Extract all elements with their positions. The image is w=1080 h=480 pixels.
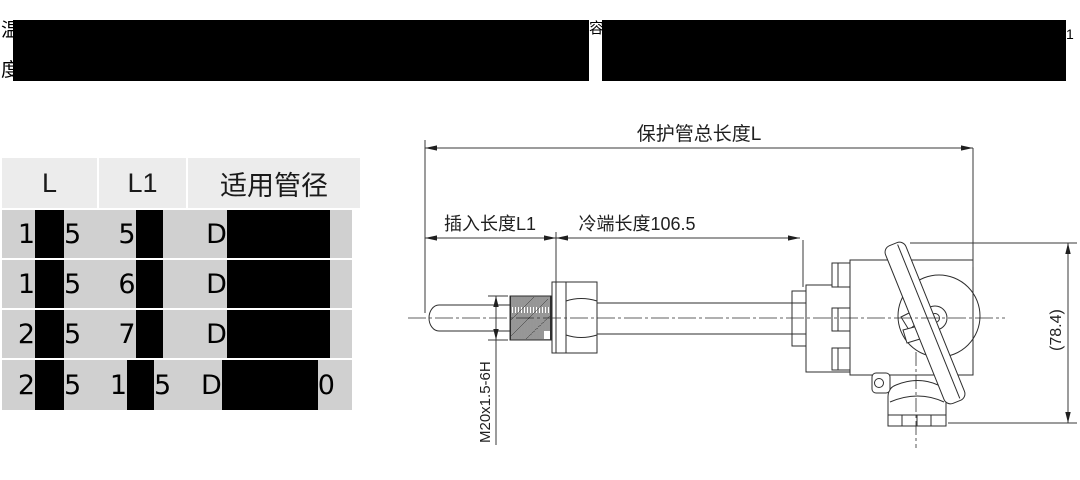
cell-L: 25 xyxy=(2,310,97,358)
flange-washer xyxy=(552,282,566,353)
redaction-bar xyxy=(127,360,154,410)
cell-L: 15 xyxy=(2,260,97,308)
cable-gland xyxy=(888,381,946,427)
sensor-drawing-svg: 保护管总长度L 插入长度L1 冷端长度106.5 M20x1.5-6H (78.… xyxy=(390,90,1080,480)
redaction-bar xyxy=(35,310,64,358)
redaction-bar xyxy=(13,20,1066,81)
dimension-arrows xyxy=(425,145,1071,423)
redaction-bar xyxy=(136,210,163,258)
cell-pipe: D0 xyxy=(184,360,352,410)
table-row: 25 7 D xyxy=(2,310,352,358)
cell-L: 15 xyxy=(2,210,97,258)
dim-insert-length-label: 插入长度L1 xyxy=(444,214,536,234)
table-header-row: L L1 适用管径 xyxy=(2,158,360,208)
table-row: 15 6 D xyxy=(2,260,352,308)
cell-pipe: D xyxy=(184,310,352,358)
redaction-bar xyxy=(227,260,330,308)
cell-L1: 7 xyxy=(97,310,184,358)
dimensions xyxy=(425,140,1077,445)
head-bosses xyxy=(832,263,850,370)
sensor-technical-drawing: 保护管总长度L 插入长度L1 冷端长度106.5 M20x1.5-6H (78.… xyxy=(390,90,1080,480)
datasheet-page: 温 度 容 1 L L1 适用管径 15 5 D xyxy=(0,0,1080,480)
cell-L1: 5 xyxy=(97,210,184,258)
cell-pipe: D xyxy=(184,260,352,308)
redaction-bar xyxy=(35,360,64,410)
hex-nut xyxy=(566,282,597,353)
dim-total-length-label: 保护管总长度L xyxy=(637,123,762,145)
table-body: 15 5 D 15 6 D xyxy=(2,210,352,410)
header-L1: L1 xyxy=(99,158,186,208)
cell-pipe: D xyxy=(184,210,352,258)
mounting-lug xyxy=(872,373,890,393)
table-row: 25 15 D0 xyxy=(2,360,352,410)
cell-L1: 15 xyxy=(97,360,184,410)
redaction-bar xyxy=(222,360,318,410)
intro-visible-column: 容 xyxy=(589,20,602,81)
redaction-bar xyxy=(227,210,330,258)
intro-line1-mid-char: 容 xyxy=(589,20,604,37)
cell-L: 25 xyxy=(2,360,97,410)
extension-tube xyxy=(597,303,792,334)
thread-spec-label: M20x1.5-6H xyxy=(477,361,494,443)
header-pipe-diameter: 适用管径 xyxy=(188,158,360,208)
cell-L1: 6 xyxy=(97,260,184,308)
head-fitting xyxy=(792,291,806,346)
redaction-bar xyxy=(227,310,330,358)
dimension-table: L L1 适用管径 15 5 D 15 6 xyxy=(2,158,360,410)
intro-line1-end-fragment: 1 xyxy=(1066,27,1074,41)
table-row: 15 5 D xyxy=(2,210,352,258)
redaction-bar xyxy=(35,210,64,258)
dim-cold-end-label: 冷端长度106.5 xyxy=(578,214,695,234)
head-height-label: (78.4) xyxy=(1048,309,1065,351)
redaction-bar xyxy=(136,310,163,358)
redaction-bar xyxy=(136,260,163,308)
redaction-bar xyxy=(35,260,64,308)
header-L: L xyxy=(2,158,97,208)
